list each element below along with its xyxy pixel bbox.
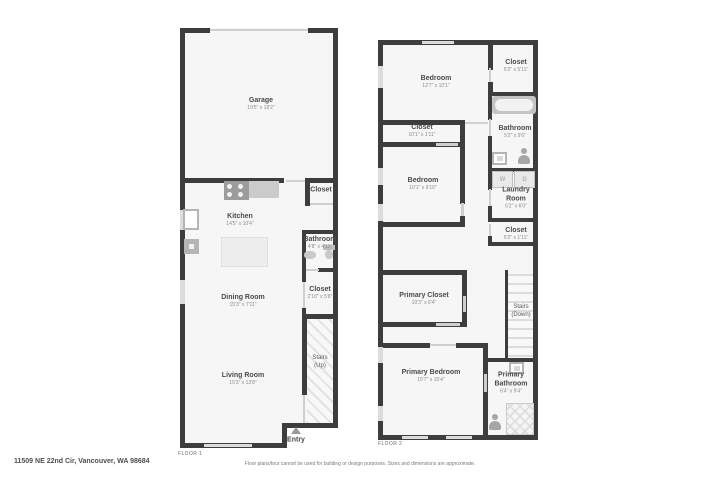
room-label-kitchen: Kitchen 14'5" x 10'4" xyxy=(226,212,253,228)
wall xyxy=(378,222,465,227)
dishwasher-icon xyxy=(184,239,199,254)
wall xyxy=(378,270,467,275)
burner-icon xyxy=(238,184,243,189)
wall xyxy=(488,218,538,222)
door-opening xyxy=(464,122,488,124)
person-icon xyxy=(489,421,501,430)
burner-icon xyxy=(227,184,232,189)
bathtub-icon xyxy=(492,96,536,114)
room-label-closet-mid: Closet 2'10" x 5'8" xyxy=(308,285,333,301)
kitchen-island xyxy=(221,237,268,267)
wall xyxy=(318,268,338,272)
room-label-closet-top: Closet xyxy=(310,185,331,194)
person-icon xyxy=(521,148,527,154)
person-icon xyxy=(518,155,530,164)
entry-arrow-icon xyxy=(291,427,301,434)
wall xyxy=(302,230,338,234)
room-label-bathroom2: Bathroom 5'2" x 9'6" xyxy=(498,124,531,140)
room-label-laundry: Laundry Room 5'2" x 6'0" xyxy=(500,186,532,211)
room-label-stairs-down: Stairs (Down) xyxy=(511,304,530,320)
disclaimer-text: Floor plans/tour cannot be used for buil… xyxy=(245,461,475,467)
room-label-living: Living Room 15'3" x 13'8" xyxy=(222,371,264,387)
door-opening xyxy=(436,143,458,146)
toilet-icon xyxy=(325,250,333,259)
door-opening xyxy=(489,189,491,207)
window xyxy=(422,41,454,44)
wall xyxy=(302,272,306,282)
door-opening xyxy=(286,180,305,182)
stairs-hatch xyxy=(307,319,333,423)
refrigerator-icon xyxy=(183,209,199,230)
room-label-primary-closet: Primary Closet 10'3" x 6'4" xyxy=(399,291,448,307)
window xyxy=(446,436,472,439)
door-opening xyxy=(306,269,319,271)
wall xyxy=(378,40,538,45)
room-label-primary-bathroom: Primary Bathroom 6'4" x 9'4" xyxy=(492,371,530,396)
door-opening xyxy=(489,119,491,137)
stove-icon xyxy=(224,181,249,200)
door-opening xyxy=(303,395,305,423)
window xyxy=(378,66,383,88)
sink-icon xyxy=(492,152,507,165)
dishwasher-detail xyxy=(189,244,194,249)
room-label-closet-wide: Closet 10'1" x 1'11" xyxy=(408,123,435,139)
garage-door-line xyxy=(210,29,308,31)
room-label-bedroom-mid: Bedroom 10'1" x 9'10" xyxy=(408,176,439,192)
door-opening xyxy=(303,282,305,308)
sink-basin xyxy=(497,156,503,161)
person-icon xyxy=(492,414,498,420)
bathtub-basin xyxy=(495,99,533,111)
burner-icon xyxy=(227,192,232,197)
room-label-garage: Garage 19'5" x 18'2" xyxy=(247,96,274,112)
door-opening xyxy=(463,296,466,312)
floor2-label: FLOOR 2 xyxy=(378,441,402,447)
room-label-closet-top-right: Closet 5'2" x 5'11" xyxy=(504,58,528,74)
wall xyxy=(378,40,383,440)
door-opening xyxy=(461,203,464,217)
wall xyxy=(378,343,430,348)
door-opening xyxy=(430,344,456,346)
window xyxy=(378,168,383,185)
wall xyxy=(333,183,338,428)
room-label-bedroom-top: Bedroom 12'7" x 10'1" xyxy=(421,74,452,90)
room-label-dining: Dining Room 15'3" x 7'11" xyxy=(221,293,265,309)
window xyxy=(204,444,252,447)
kitchen-counter xyxy=(249,181,279,198)
property-address: 11509 NE 22nd Cir, Vancouver, WA 98684 xyxy=(14,458,150,465)
window xyxy=(180,280,185,304)
window xyxy=(378,347,383,363)
room-label-bathroom1: Bathroom 4'8" x 4'11" xyxy=(303,235,336,251)
room-label-primary-bedroom: Primary Bedroom 15'7" x 15'4" xyxy=(402,368,461,384)
sink-icon xyxy=(304,251,316,259)
room-label-stairs-up: Stairs (Up) xyxy=(312,355,327,371)
wall xyxy=(488,242,538,246)
floor1-label: FLOOR 1 xyxy=(178,451,202,457)
wall xyxy=(305,178,310,206)
window xyxy=(378,204,383,221)
burner-icon xyxy=(238,192,243,197)
wall xyxy=(333,28,338,183)
shower-icon xyxy=(506,403,534,435)
wall xyxy=(460,147,465,204)
door-opening xyxy=(310,203,334,205)
door-opening xyxy=(484,374,487,392)
wall xyxy=(488,40,493,70)
room-label-entry: Entry xyxy=(287,435,305,444)
door-opening xyxy=(436,323,460,326)
window xyxy=(378,406,383,421)
wall xyxy=(180,28,185,183)
window xyxy=(402,436,428,439)
floorplan-page: { "colors": { "wall": "#3d3d3d", "room_f… xyxy=(0,0,720,479)
room-label-closet-right: Closet 5'2" x 1'11" xyxy=(504,226,528,242)
